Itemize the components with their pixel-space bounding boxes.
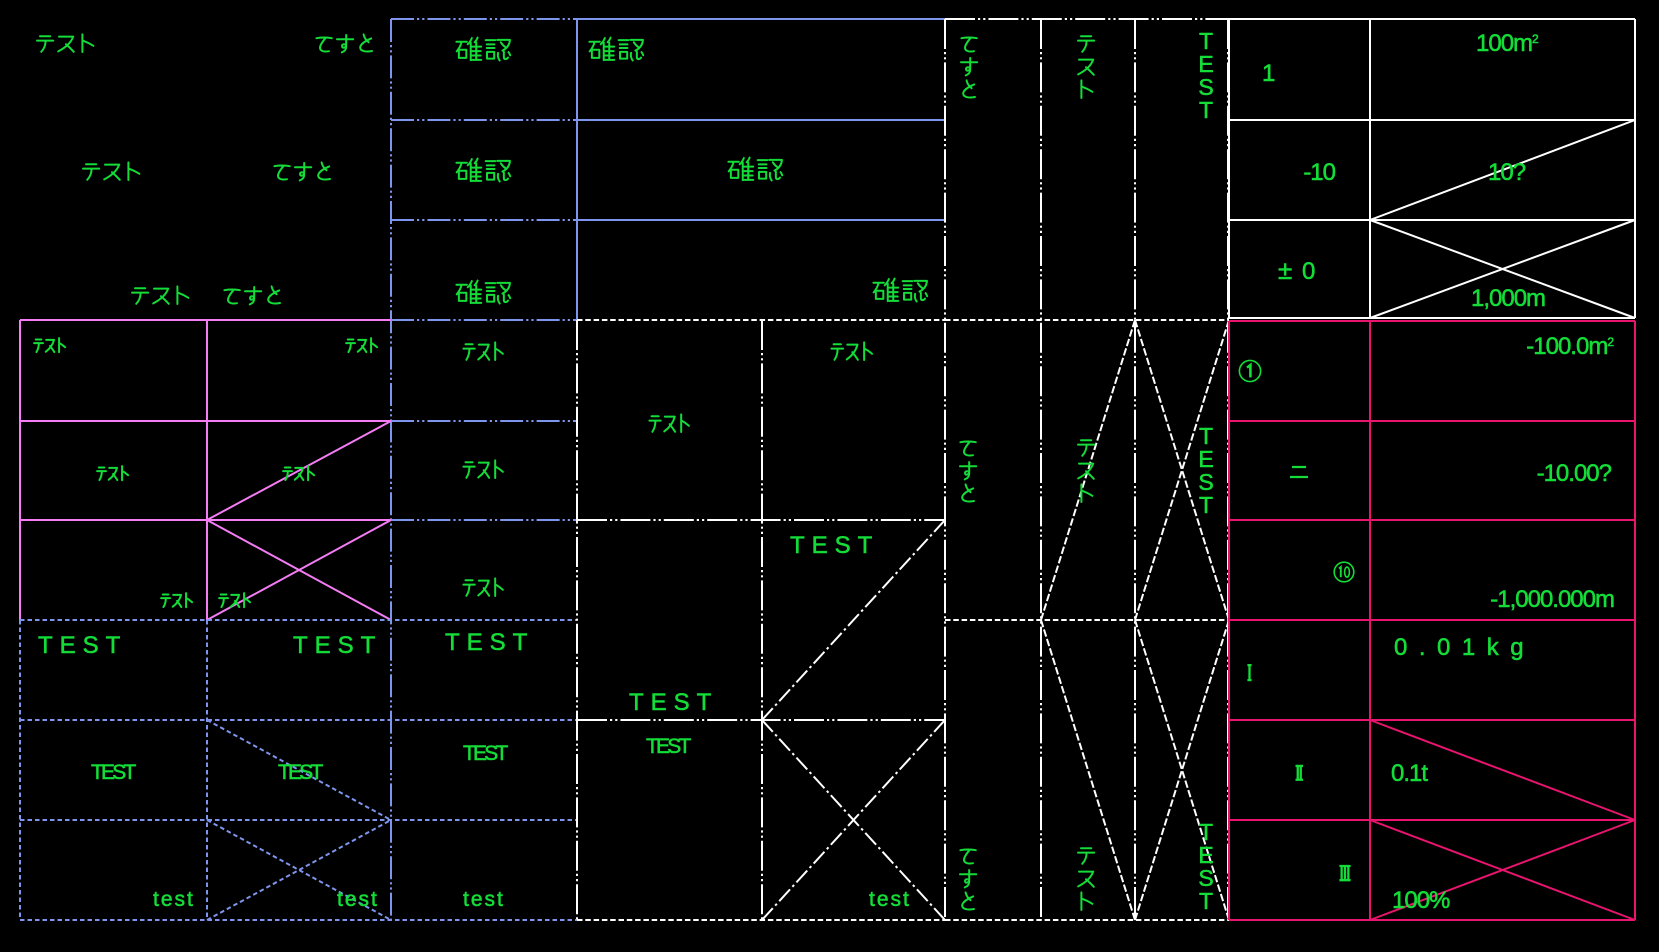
svg-text:T: T <box>1199 97 1213 123</box>
svg-text:TEST: TEST <box>293 632 382 659</box>
svg-text:TEST: TEST <box>790 532 879 559</box>
svg-text:TEST: TEST <box>38 632 127 659</box>
svg-text:TEST: TEST <box>629 689 718 716</box>
svg-text:TEST: TEST <box>445 629 534 656</box>
svg-text:100%: 100% <box>1392 887 1450 914</box>
svg-text:-1,000.000m: -1,000.000m <box>1490 586 1614 613</box>
svg-text:TEST: TEST <box>278 761 323 784</box>
svg-text:T: T <box>1199 492 1213 518</box>
svg-text:TEST: TEST <box>463 742 508 765</box>
svg-text:-10.00?: -10.00? <box>1537 460 1612 487</box>
svg-text:T: T <box>1199 888 1213 914</box>
svg-text:-100.0m2: -100.0m2 <box>1526 333 1614 360</box>
svg-text:±: ± <box>1278 255 1292 285</box>
svg-text:TEST: TEST <box>91 761 136 784</box>
svg-text:0.01kg: 0.01kg <box>1394 634 1535 661</box>
svg-text:1,000m: 1,000m <box>1471 285 1545 312</box>
svg-text:TEST: TEST <box>646 735 691 758</box>
svg-text:0: 0 <box>1302 258 1315 285</box>
svg-text:test: test <box>337 888 379 911</box>
svg-text:10?: 10? <box>1488 159 1526 186</box>
svg-text:test: test <box>869 888 911 911</box>
svg-text:1: 1 <box>1262 60 1275 87</box>
svg-text:test: test <box>463 888 505 911</box>
svg-text:-10: -10 <box>1303 159 1335 186</box>
svg-text:test: test <box>153 888 195 911</box>
svg-text:0.1t: 0.1t <box>1391 760 1428 787</box>
svg-text:100m2: 100m2 <box>1476 30 1539 57</box>
